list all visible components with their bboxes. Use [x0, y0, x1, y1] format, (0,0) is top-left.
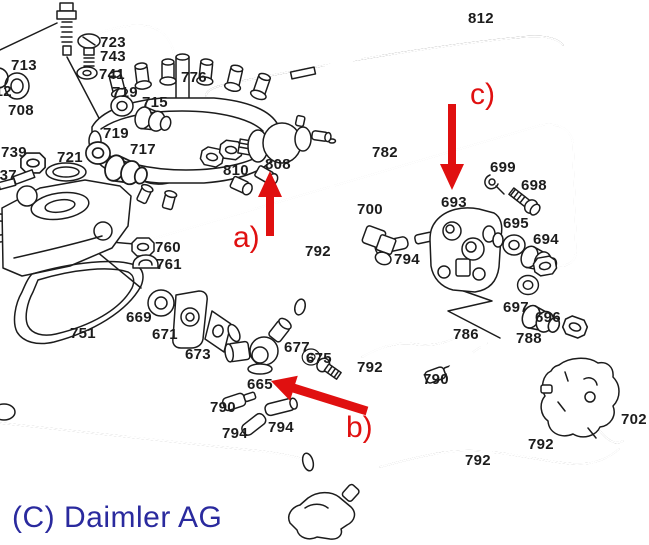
part-number-label: 812 [468, 12, 494, 26]
part-number-label: 713 [11, 59, 37, 73]
right-component [541, 358, 619, 438]
part-number-label: 776 [181, 71, 207, 85]
screw-723-743 [78, 34, 100, 66]
s-hose-792 [451, 355, 497, 456]
bottom-right-pipe [380, 449, 619, 467]
part-number-label: 790 [210, 401, 236, 415]
diagram-line-art [0, 0, 649, 545]
clip-761 [133, 255, 158, 268]
part-number-label: 739 [1, 146, 27, 160]
part-number-label: 794 [222, 427, 248, 441]
part-number-label: 788 [516, 332, 542, 346]
part-number-label: 693 [441, 196, 467, 210]
part-number-label: 671 [152, 328, 178, 342]
part-number-label: 675 [306, 352, 332, 366]
part-number-label: 782 [372, 146, 398, 160]
part-number-label: 715 [142, 96, 168, 110]
part-number-label: 702 [621, 413, 647, 427]
part-number-label: 719 [103, 127, 129, 141]
vacuum-tube-792-center [303, 139, 336, 456]
nut-line-812 [561, 314, 589, 340]
part-number-label: 665 [247, 378, 273, 392]
parts-diagram: 7237437137417767197157087127197177397217… [0, 0, 649, 545]
elbow-hose-788 [484, 337, 510, 360]
center-hose [222, 271, 307, 344]
annotation-letter: a) [233, 224, 260, 252]
part-number-label: 760 [155, 241, 181, 255]
seal-mid [518, 276, 539, 295]
part-number-label: 790 [423, 373, 449, 387]
part-number-label: 694 [533, 233, 559, 247]
arrow-c [440, 104, 464, 190]
part-number-label: 792 [465, 454, 491, 468]
elbow-hose-702 [622, 431, 647, 460]
part-number-label: 712 [0, 85, 12, 99]
molded-hose-bottom [301, 452, 354, 490]
seal-719-lower [86, 142, 110, 164]
part-number-label: 719 [112, 86, 138, 100]
plate-671 [173, 291, 207, 348]
part-number-label: 792 [528, 438, 554, 452]
part-number-label: 717 [130, 143, 156, 157]
part-number-label: 673 [185, 348, 211, 362]
part-number-label: 794 [394, 253, 420, 267]
screw-699 [485, 175, 504, 194]
part-number-label: 786 [453, 328, 479, 342]
part-number-label: 794 [268, 421, 294, 435]
part-number-label: 792 [357, 361, 383, 375]
part-number-label: 700 [357, 203, 383, 217]
part-number-label: 697 [503, 301, 529, 315]
nut-760 [132, 238, 154, 256]
part-number-label: 808 [265, 158, 291, 172]
part-number-label: 761 [156, 258, 182, 272]
bottom-left-hose [0, 338, 22, 420]
part-number-label: 708 [8, 104, 34, 118]
regulator-valve-693 [414, 208, 503, 292]
annotation-letter: c) [470, 81, 495, 109]
tube-piece-794-b [264, 397, 298, 417]
part-number-label: 737 [0, 169, 17, 183]
molded-part-bottom [289, 483, 360, 539]
annotation-letter: b) [346, 414, 373, 442]
part-number-label: 741 [99, 68, 125, 82]
banjo-bolt-top-left [57, 3, 76, 55]
seal-741 [77, 67, 97, 79]
arrow-a [258, 171, 282, 236]
part-number-label: 721 [57, 151, 83, 165]
part-number-label: 699 [490, 161, 516, 175]
part-number-label: 696 [535, 311, 561, 325]
part-number-label: 792 [305, 245, 331, 259]
part-number-label: 743 [100, 50, 126, 64]
seal-695 [503, 235, 525, 255]
part-number-label: 698 [521, 179, 547, 193]
part-number-label: 810 [223, 164, 249, 178]
copyright-text: (C) Daimler AG [12, 501, 222, 535]
part-number-label: 751 [70, 327, 96, 341]
part-number-label: 669 [126, 311, 152, 325]
part-number-label: 695 [503, 217, 529, 231]
